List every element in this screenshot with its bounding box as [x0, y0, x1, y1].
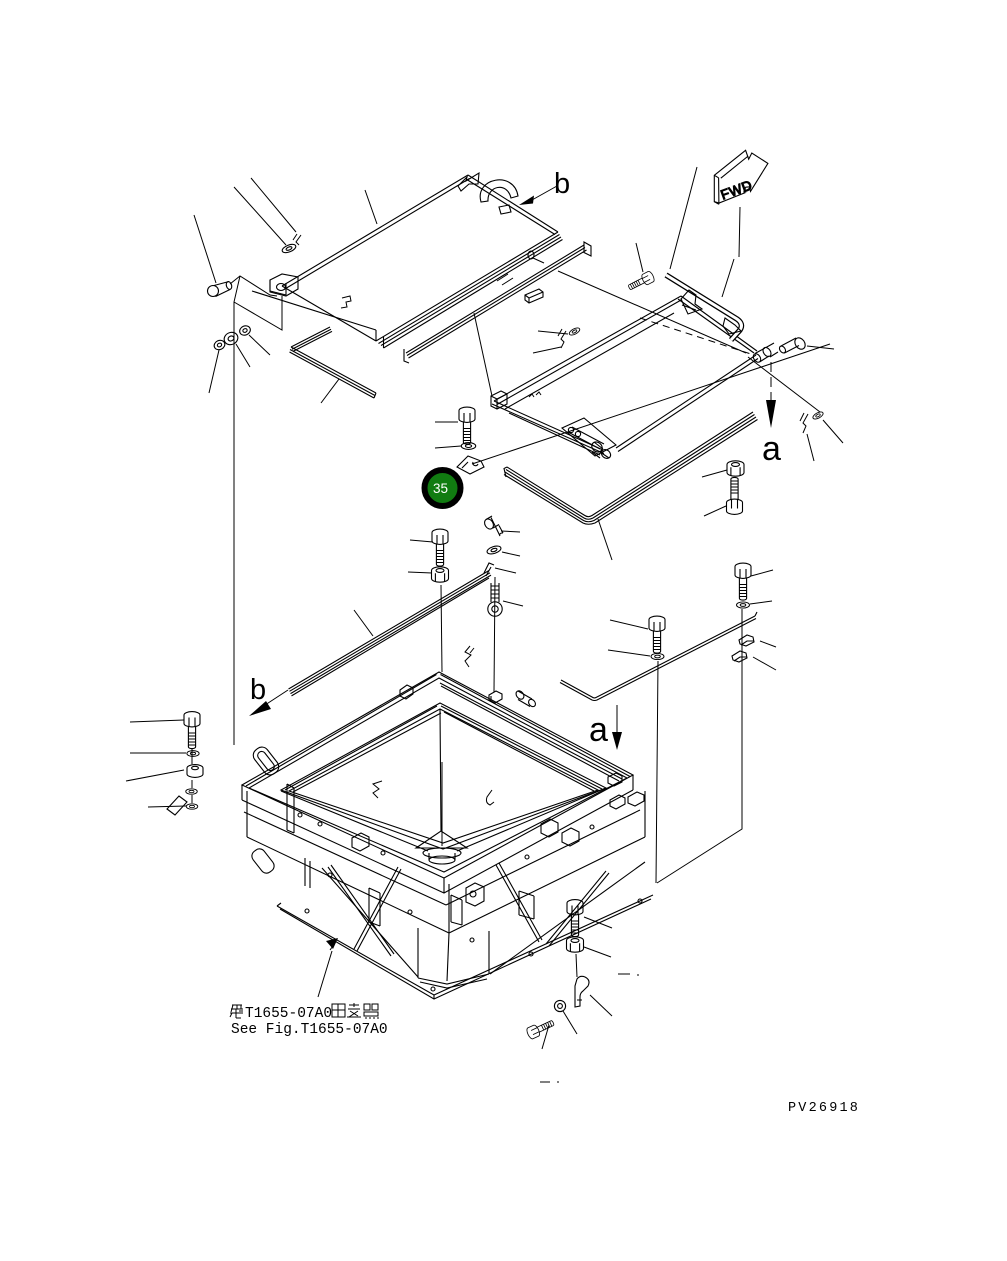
- svg-text:See Fig.T1655-07A0: See Fig.T1655-07A0: [231, 1022, 388, 1038]
- svg-text:b: b: [554, 168, 570, 200]
- svg-text:b: b: [250, 674, 266, 706]
- svg-text:35: 35: [433, 481, 448, 496]
- svg-text:a: a: [762, 430, 781, 468]
- svg-text:PV26918: PV26918: [788, 1101, 860, 1116]
- svg-text:T1655-07A0: T1655-07A0: [245, 1006, 332, 1022]
- svg-text:a: a: [589, 711, 608, 749]
